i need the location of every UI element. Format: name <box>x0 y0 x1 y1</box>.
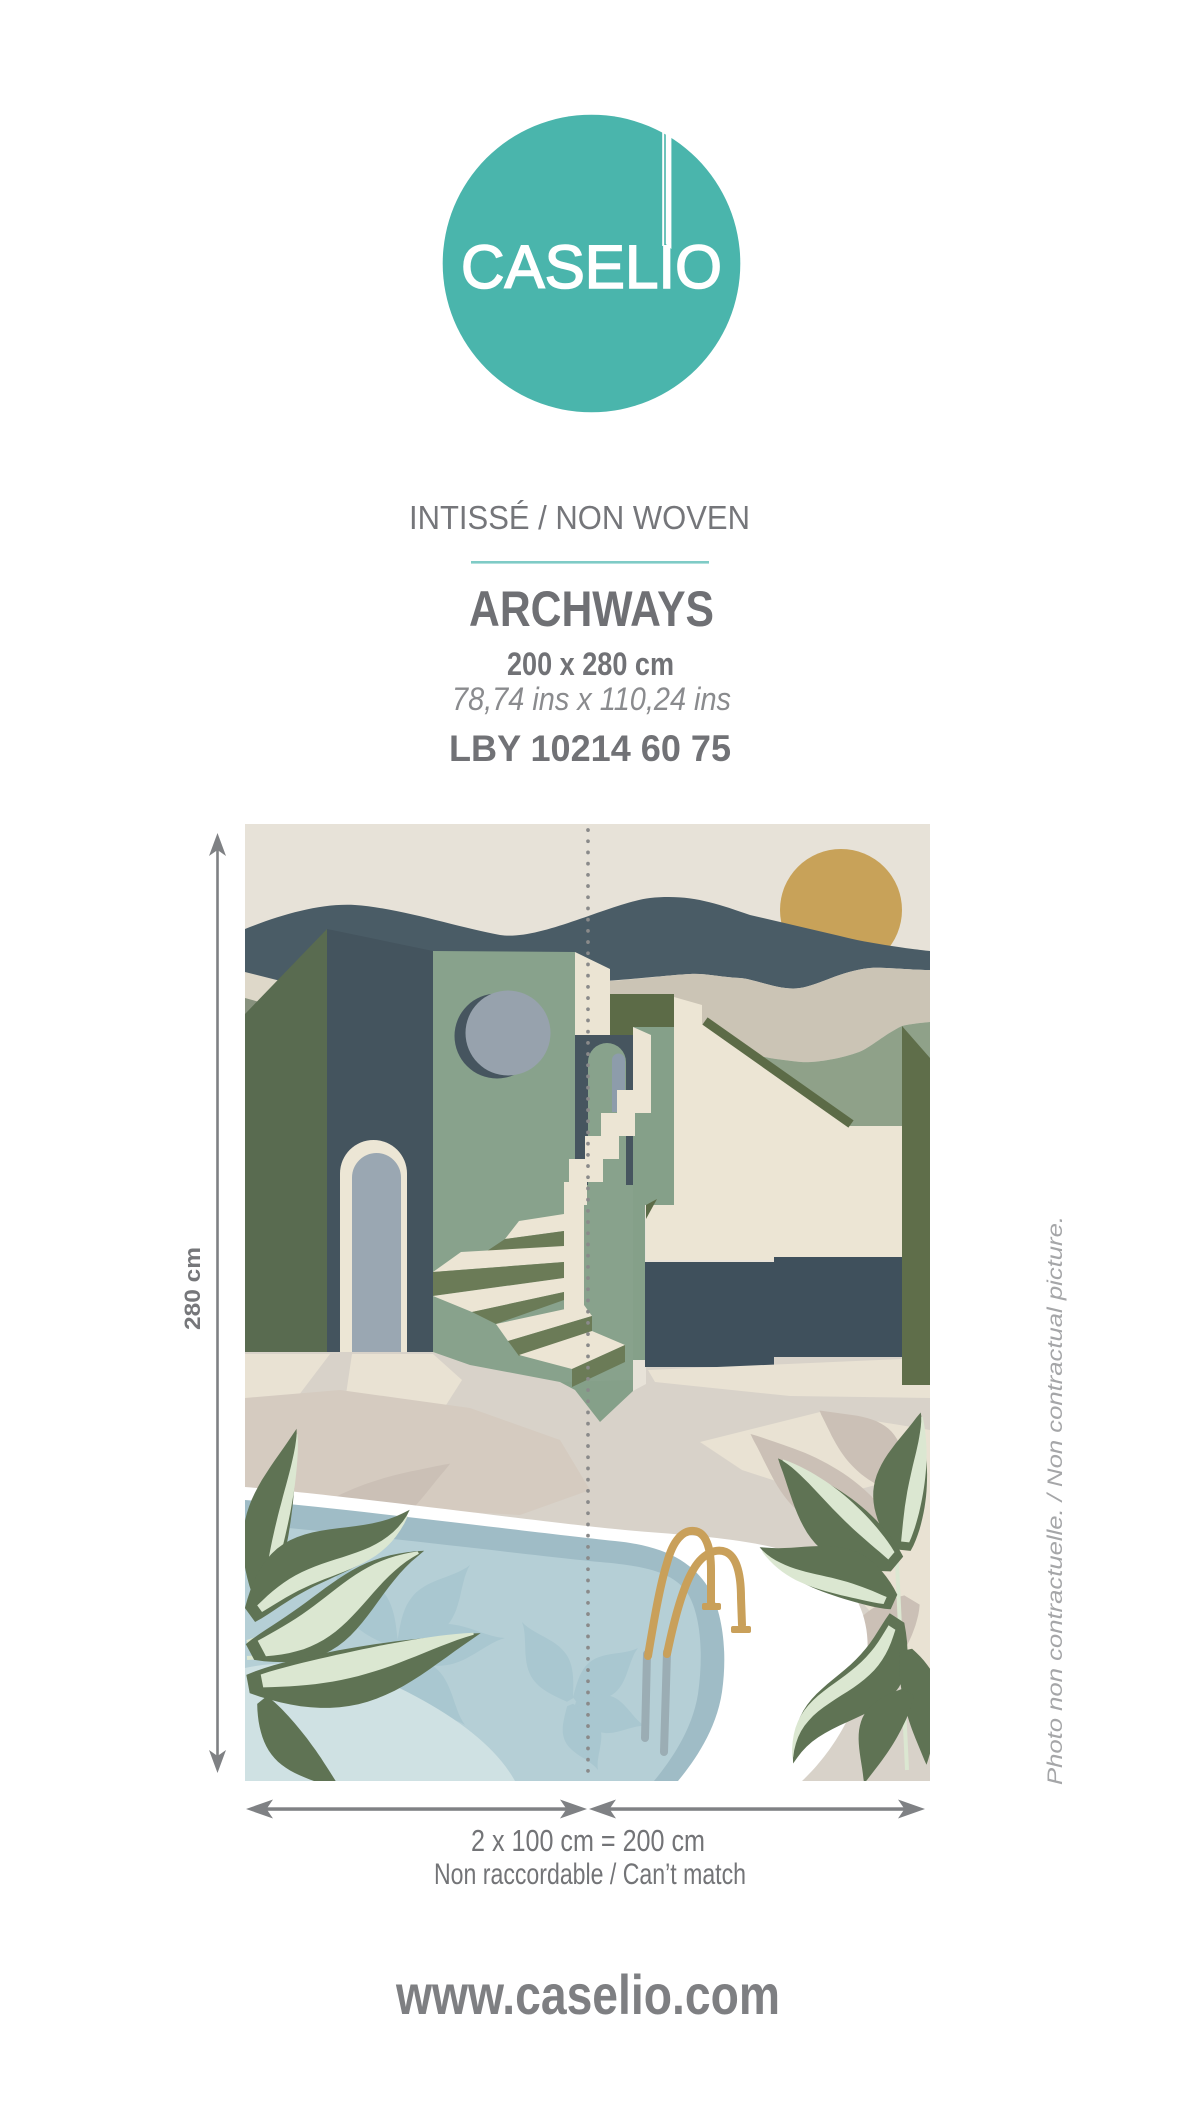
svg-text:Non raccordable / Can’t match: Non raccordable / Can’t match <box>434 1858 746 1891</box>
svg-text:200 x 280 cm: 200 x 280 cm <box>507 646 674 682</box>
svg-text:ARCHWAYS: ARCHWAYS <box>469 581 714 637</box>
svg-text:www.caselio.com: www.caselio.com <box>395 1963 780 2026</box>
svg-text:2 x 100 cm = 200 cm: 2 x 100 cm = 200 cm <box>471 1824 705 1858</box>
svg-text:78,74 ins x 110,24 ins: 78,74 ins x 110,24 ins <box>452 681 731 717</box>
svg-text:LBY 10214 60 75: LBY 10214 60 75 <box>449 727 731 769</box>
svg-text:Photo non contractuelle. / Non: Photo non contractuelle. / Non contractu… <box>1044 1216 1067 1785</box>
svg-text:INTISSÉ / NON WOVEN: INTISSÉ / NON WOVEN <box>409 499 750 536</box>
